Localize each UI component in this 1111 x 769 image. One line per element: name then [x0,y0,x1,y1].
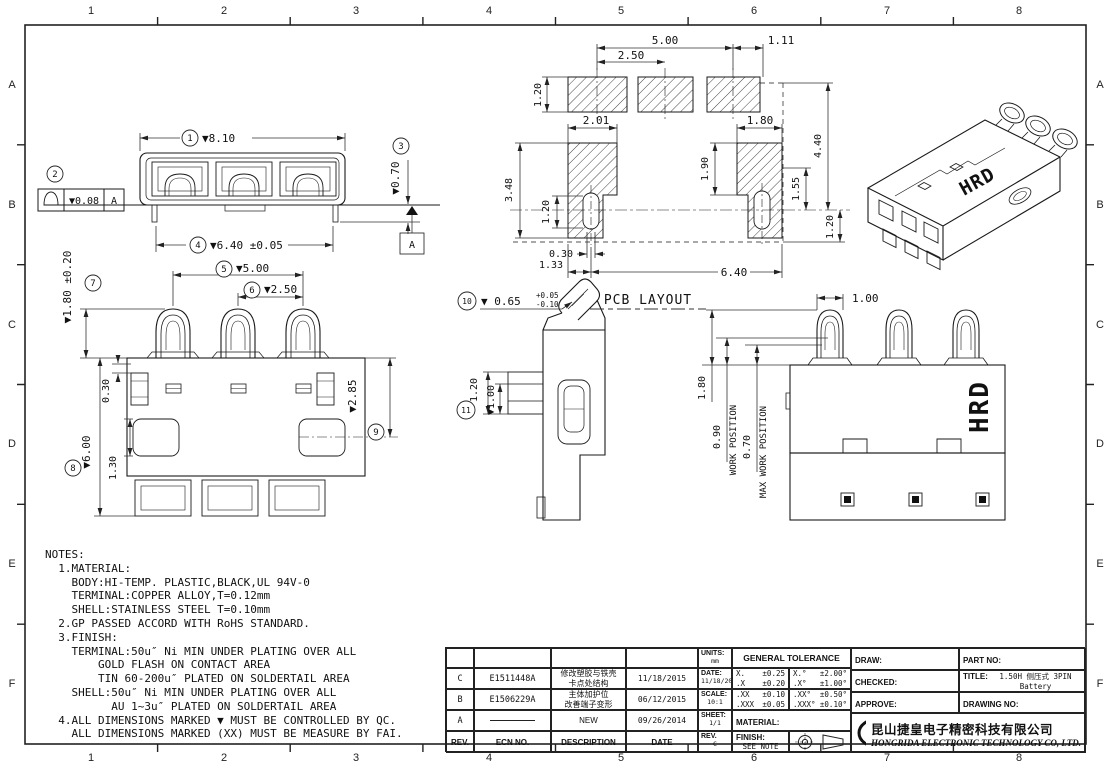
rev-spare-rev [446,648,474,668]
zone-col-3-bottom: 3 [348,751,364,765]
company-name-en: HONGRIDA ELECTRONIC TECHNOLOGY CO, LTD. [871,738,1081,748]
drawing-no-cell: DRAWING NO: [959,692,1086,713]
balloon-5: 5 [216,261,232,277]
material-label: MATERIAL: [736,718,779,727]
dim-250: ▼2.50 [264,283,297,296]
rev-c-ecn: E1511448A [474,668,551,689]
rev-spare-desc [551,648,626,668]
dim-810: ▼8.10 [202,132,235,145]
dim-130: 1.30 [108,456,119,480]
pcb-layout-title: PCB LAYOUT [604,293,692,308]
draw-label: DRAW: [855,656,882,665]
pcb-dim-201: 2.01 [583,114,610,127]
pcb-dim-640: 6.40 [721,266,748,279]
dim-500: ▼5.00 [236,262,269,275]
notes-block: NOTES: 1.MATERIAL: BODY:HI-TEMP. PLASTIC… [45,548,403,741]
title-block: C E1511448A 修改塑胶与铁壳 卡点处结构 11/18/2015 B E… [445,647,1085,752]
tol-xdeg-value: ±2.00° [820,669,847,679]
tol-xdeg-label: X.° [793,669,807,679]
zone-col-7-bottom: 7 [879,751,895,765]
sheet-label: SHEET: [701,712,729,719]
pcb-dim-190: 1.90 [700,157,711,181]
zone-row-d-left: D [4,437,20,451]
rev-b-ecn: E1506229A [474,689,551,710]
rev-spare-ecn [474,648,551,668]
company-logo-icon: D [856,716,866,750]
draw-cell: DRAW: [851,648,959,670]
tol-dx-label: .X [736,679,745,689]
material-cell: MATERIAL: [732,710,851,731]
tol-dxdeg-label: .X° [793,679,807,689]
balloon-4-number: 4 [195,241,200,251]
zone-row-a-left: A [4,78,20,92]
top-view-texts: 1 ▼8.10 2 ▼0.08 A 3 ▼0.70 4 ▼6.40 ±0.05 … [47,130,415,253]
rev-c-date: 11/18/2015 [626,668,698,689]
scale-label: SCALE: [701,691,729,698]
balloon-9-number: 9 [373,428,378,438]
zone-col-6-top: 6 [746,4,762,18]
title-label: TITLE: [963,672,988,681]
zone-row-c-right: C [1092,318,1108,332]
side-view [508,279,605,520]
tol-linear-upper: X.±0.25 .X±0.20 [732,668,789,689]
balloon-7-number: 7 [90,279,95,289]
rev-c-rev: C [446,668,474,689]
dim-285: ▼2.85 [346,379,359,412]
approve-label: APPROVE: [855,700,897,709]
date-cell: DATE: 11/18/2015 [698,668,732,689]
pcb-dim-120-left: 1.20 [541,200,552,224]
dim-600: ▼6.00 [80,435,93,468]
balloon-7: 7 [85,275,101,291]
drawing-no-label: DRAWING NO: [963,700,1019,709]
pcb-texts: 5.00 1.11 2.50 1.20 2.01 1.80 1.90 4.40 … [504,34,836,308]
balloon-2: 2 [47,166,63,182]
dim-100-tab: ▼1.00 [486,385,497,415]
front-view-texts: 5 ▼5.00 6 ▼2.50 7 ▼1.80 ±0.20 8 ▼6.00 0.… [61,251,384,480]
scale-value: 10:1 [701,698,729,706]
zone-col-4-top: 4 [481,4,497,18]
zone-row-b-left: B [4,198,20,212]
zone-row-f-right: F [1092,677,1108,691]
balloon-6: 6 [244,282,260,298]
title-cell: TITLE: 1.50H 侧压式 3PIN Battery 2.50PITCH [959,670,1086,692]
finish-label: FINISH: [736,733,785,742]
balloon-6-number: 6 [249,286,254,296]
tol-xxdeg-value: ±0.50° [820,690,847,700]
zone-row-b-right: B [1092,198,1108,212]
zone-col-2-bottom: 2 [216,751,232,765]
tol-xxdeg-label: .XX° [793,690,811,700]
tol-x-value: ±0.25 [762,669,785,679]
balloon-10: 10 [458,292,476,310]
zone-row-e-right: E [1092,557,1108,571]
rev-b-rev: B [446,689,474,710]
pcb-dim-250: 2.50 [618,49,645,62]
rev-header-date: DATE [626,731,698,753]
rev-header-rev: REV. [446,731,474,753]
balloon-3-number: 3 [398,142,403,152]
dim-180: ▼1.80 ±0.20 [61,251,74,324]
units-label: UNITS: [701,650,729,657]
zone-row-e-left: E [4,557,20,571]
title-value: 1.50H 侧压式 3PIN Battery 2.50PITCH [989,672,1082,692]
rev-a-date: 09/26/2014 [626,710,698,731]
projection-symbol-cell [789,731,851,753]
pcb-layout-view [510,68,850,245]
pcb-dim-133: 1.33 [539,260,563,271]
pcb-dim-111: 1.11 [768,34,795,47]
work-dim-090: 0.90 [712,425,723,449]
dim-065-tol-plus: +0.05 [536,291,559,300]
pcb-dim-440: 4.40 [813,134,824,158]
part-no-cell: PART NO: B30-AB03F15C [959,648,1086,670]
zone-col-3-top: 3 [348,4,364,18]
pcb-dim-120-right: 1.20 [825,215,836,239]
zone-col-1-bottom: 1 [83,751,99,765]
pcb-dim-500: 5.00 [652,34,679,47]
company-cell: D 昆山捷皇电子精密科技有限公司 HONGRIDA ELECTRONIC TEC… [851,713,1086,753]
balloon-1: 1 [182,130,198,146]
iso-view: HRD [868,99,1081,270]
balloon-10-number: 10 [462,297,472,306]
work-dim-180: 1.80 [697,376,708,400]
zone-col-1-top: 1 [83,4,99,18]
approve-cell: APPROVE: [851,692,959,713]
work-view-brand: HRD [965,380,995,433]
zone-col-2-top: 2 [216,4,232,18]
rev-a-ecn [474,710,551,731]
pcb-dim-030: 0.30 [549,249,573,260]
company-name-cn: 昆山捷皇电子精密科技有限公司 [871,719,1081,738]
pcb-dim-120-top: 1.20 [533,83,544,107]
fcf-datum: A [111,196,117,207]
iso-view-brand: HRD [956,163,999,200]
drawing-sheet: 1 ▼8.10 2 ▼0.08 A 3 ▼0.70 4 ▼6.40 ±0.05 … [0,0,1111,769]
rev-a-ecn-dash [490,720,535,721]
zone-col-5-top: 5 [613,4,629,18]
finish-value: SEE NOTE [736,742,785,751]
rev-header-ecn: ECN NO. [474,731,551,753]
zone-col-4-bottom: 4 [481,751,497,765]
zone-col-7-top: 7 [879,4,895,18]
dim-030: 0.30 [101,379,112,403]
top-view-dimensions [38,133,424,254]
rev-header-desc: DESCRIPTION [551,731,626,753]
work-position-label: WORK POSITION [729,405,739,475]
sheet-cell: SHEET: 1/1 [698,710,732,731]
tol-xx-value: ±0.10 [762,690,785,700]
dim-120-tab: 1.20 [469,378,480,402]
rev-b-desc: 主体加护位 改善端子变形 [551,689,626,710]
zone-col-6-bottom: 6 [746,751,762,765]
tol-x-label: X. [736,669,745,679]
zone-row-c-left: C [4,318,20,332]
dim-065: ▼ 0.65 [481,295,521,308]
tol-xxxdeg-value: ±0.10° [820,700,847,710]
dim-065-tol-minus: -0.10 [536,300,559,309]
general-tolerance-title: GENERAL TOLERANCE [732,648,851,668]
work-view-texts: 1.00 1.80 0.90 WORK POSITION 0.70 MAX WO… [697,292,995,498]
rev-value: C [701,740,729,748]
date-label: DATE: [701,670,729,677]
zone-row-f-left: F [4,677,20,691]
rev-spare-date [626,648,698,668]
balloon-11-number: 11 [461,406,471,415]
top-view [55,153,440,222]
balloon-3: 3 [393,138,409,154]
tol-dxdeg-value: ±1.00° [820,679,847,689]
balloon-5-number: 5 [221,265,226,275]
balloon-1-number: 1 [187,134,192,144]
part-no-label: PART NO: [963,656,1001,665]
zone-col-8-top: 8 [1011,4,1027,18]
tol-xxx-label: .XXX [736,700,754,710]
rev-a-desc: NEW [551,710,626,731]
tol-angular-upper: X.°±2.00° .X°±1.00° [789,668,851,689]
balloon-4: 4 [190,237,206,253]
balloon-8: 8 [65,460,81,476]
sheet-value: 1/1 [701,719,729,727]
scale-cell: SCALE: 10:1 [698,689,732,710]
work-dim-070: 0.70 [742,435,753,459]
units-cell: UNITS: mm [698,648,732,668]
pcb-dim-348: 3.48 [504,178,515,202]
rev-c-desc: 修改塑胶与铁壳 卡点处结构 [551,668,626,689]
zone-row-d-right: D [1092,437,1108,451]
work-dim-100: 1.00 [852,292,879,305]
tol-xxx-value: ±0.05 [762,700,785,710]
tol-dx-value: ±0.20 [762,679,785,689]
rev-label: REV. [701,733,729,740]
balloon-11: 11 [457,401,475,419]
tol-xx-label: .XX [736,690,750,700]
zone-col-5-bottom: 5 [613,751,629,765]
zone-col-8-bottom: 8 [1011,751,1027,765]
third-angle-projection-icon [791,733,849,751]
max-work-position-label: MAX WORK POSITION [759,406,769,498]
pcb-dim-180: 1.80 [747,114,774,127]
tol-angular-lower: .XX°±0.50° .XXX°±0.10° [789,689,851,710]
dim-640: ▼6.40 ±0.05 [210,239,283,252]
balloon-2-number: 2 [52,170,57,180]
date-value: 11/18/2015 [701,677,729,685]
fcf-value: ▼0.08 [69,196,99,207]
rev-b-date: 06/12/2015 [626,689,698,710]
checked-cell: CHECKED: [851,670,959,692]
pcb-dim-155: 1.55 [791,177,802,201]
datum-a-label: A [409,240,415,251]
finish-cell: FINISH: SEE NOTE [732,731,789,753]
checked-label: CHECKED: [855,678,897,687]
tol-linear-lower: .XX±0.10 .XXX±0.05 [732,689,789,710]
balloon-9: 9 [368,424,384,440]
dim-070: ▼0.70 [389,161,402,194]
company-names: 昆山捷皇电子精密科技有限公司 HONGRIDA ELECTRONIC TECHN… [871,719,1081,748]
units-value: mm [701,657,729,665]
work-view-dimensions [702,294,843,472]
rev-cell: REV. C [698,731,732,753]
tol-xxxdeg-label: .XXX° [793,700,816,710]
rev-a-rev: A [446,710,474,731]
balloon-8-number: 8 [70,464,75,474]
zone-row-a-right: A [1092,78,1108,92]
